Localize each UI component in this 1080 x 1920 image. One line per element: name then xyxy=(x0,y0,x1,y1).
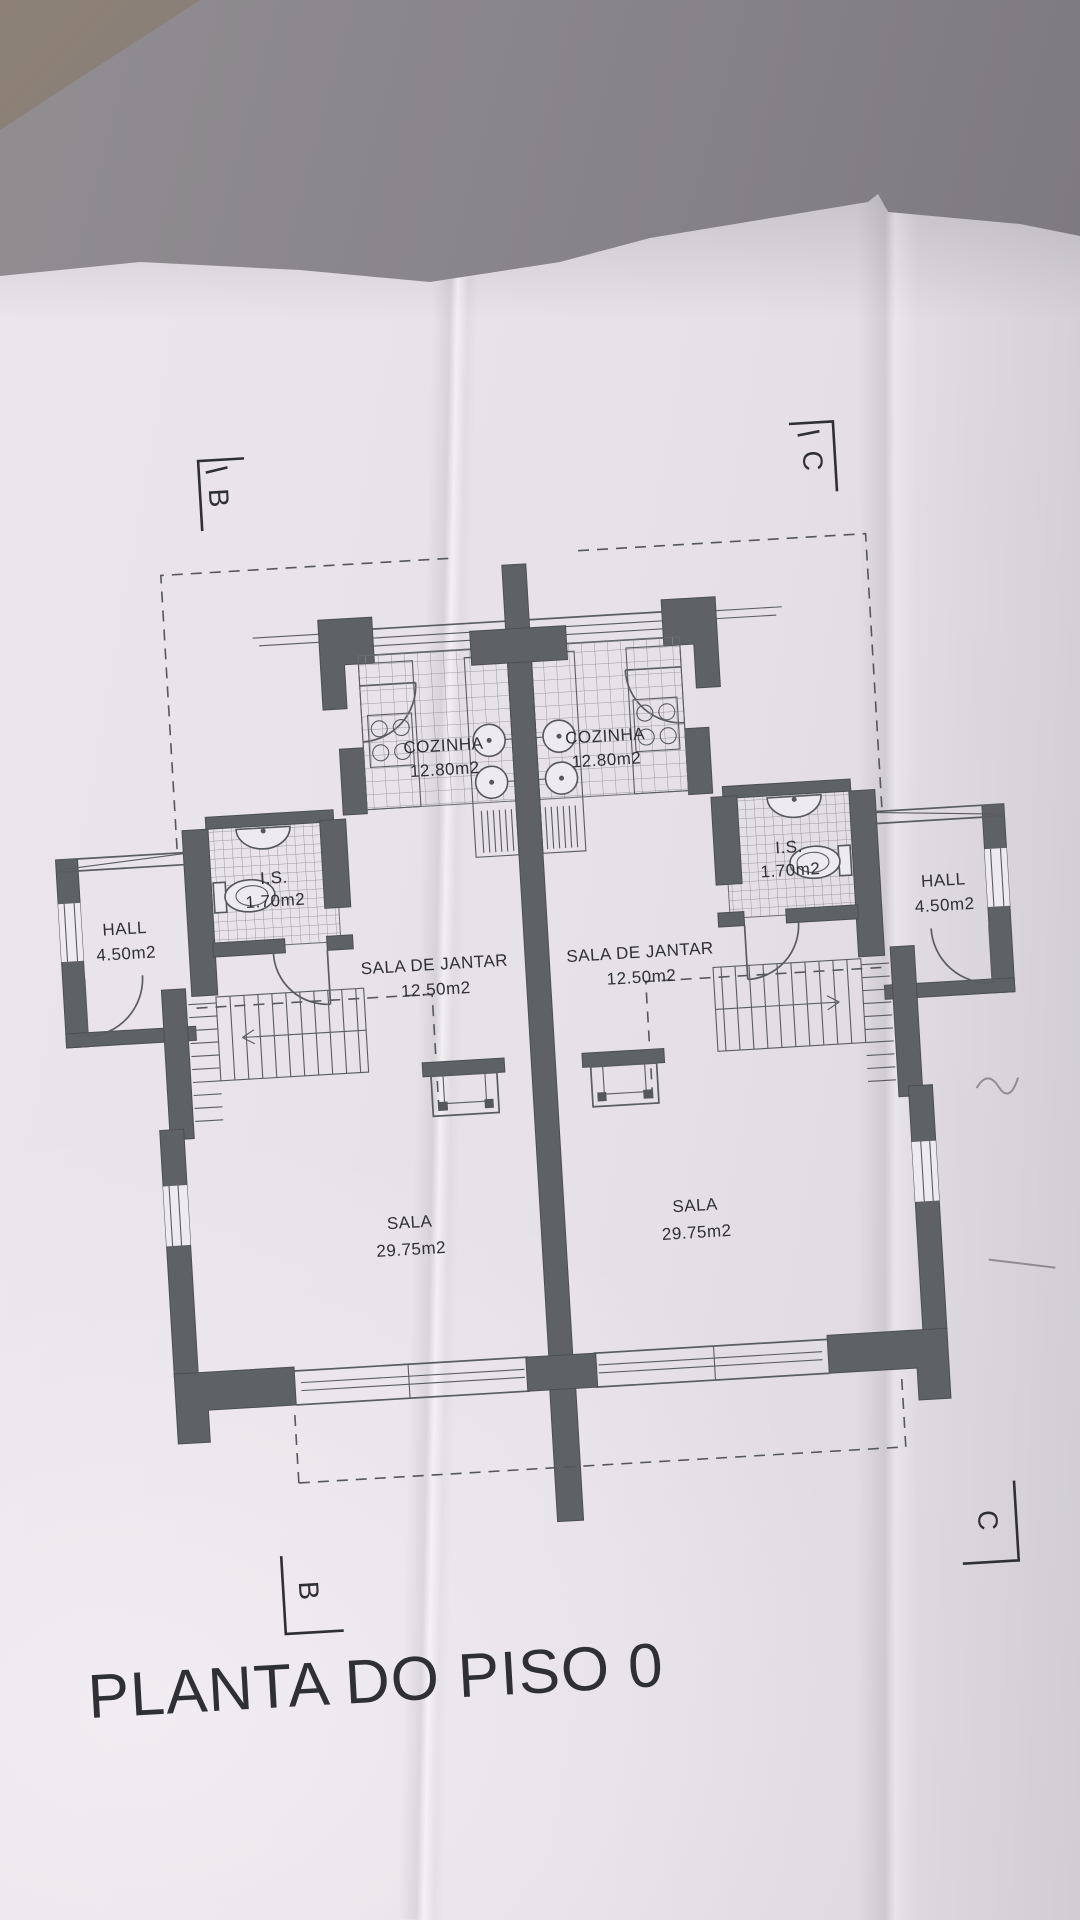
room-area-sala-right: 29.75m2 xyxy=(661,1221,732,1244)
room-label-sala-left: SALA xyxy=(386,1212,433,1234)
section-marker-b-top: B xyxy=(198,458,248,531)
room-area-jantar-right: 12.50m2 xyxy=(606,966,677,989)
paper-sheet: COZINHA 12.80m2 I.S. 1.70m2 HALL 4.50m2 … xyxy=(0,190,1080,1920)
handwritten-mark xyxy=(976,1077,1019,1096)
section-marker-b-bottom-letter: B xyxy=(293,1580,325,1600)
section-marker-b-top-letter: B xyxy=(203,488,235,508)
room-label-hall-left: HALL xyxy=(102,918,148,940)
photo-scene: COZINHA 12.80m2 I.S. 1.70m2 HALL 4.50m2 … xyxy=(0,0,1080,1920)
room-label-sala-right: SALA xyxy=(672,1195,719,1217)
room-label-jantar-left: SALA DE JANTAR xyxy=(360,951,508,979)
room-area-sala-left: 29.75m2 xyxy=(376,1238,447,1261)
room-label-is-right: I.S. xyxy=(775,837,804,858)
section-marker-b-bottom: B xyxy=(281,1553,344,1634)
room-area-is-left: 1.70m2 xyxy=(245,890,306,913)
room-label-hall-right: HALL xyxy=(920,869,966,891)
room-area-hall-right: 4.50m2 xyxy=(914,894,975,917)
floor-plan-drawing: COZINHA 12.80m2 I.S. 1.70m2 HALL 4.50m2 … xyxy=(0,379,1080,1737)
room-area-jantar-left: 12.50m2 xyxy=(401,978,472,1001)
room-area-hall-left: 4.50m2 xyxy=(96,942,157,965)
section-marker-c-top: C xyxy=(789,421,837,493)
room-label-is-left: I.S. xyxy=(260,868,289,889)
pen-scratch xyxy=(989,1256,1056,1272)
unit-left xyxy=(39,555,553,1449)
section-marker-c-bottom: C xyxy=(958,1481,1019,1564)
section-marker-c-top-letter: C xyxy=(797,450,829,472)
room-area-is-right: 1.70m2 xyxy=(760,859,821,882)
section-marker-c-bottom-letter: C xyxy=(972,1509,1004,1531)
unit-right xyxy=(525,526,1039,1420)
room-label-jantar-right: SALA DE JANTAR xyxy=(566,938,714,966)
terrace-dashed-outline-bottom xyxy=(294,1372,905,1483)
